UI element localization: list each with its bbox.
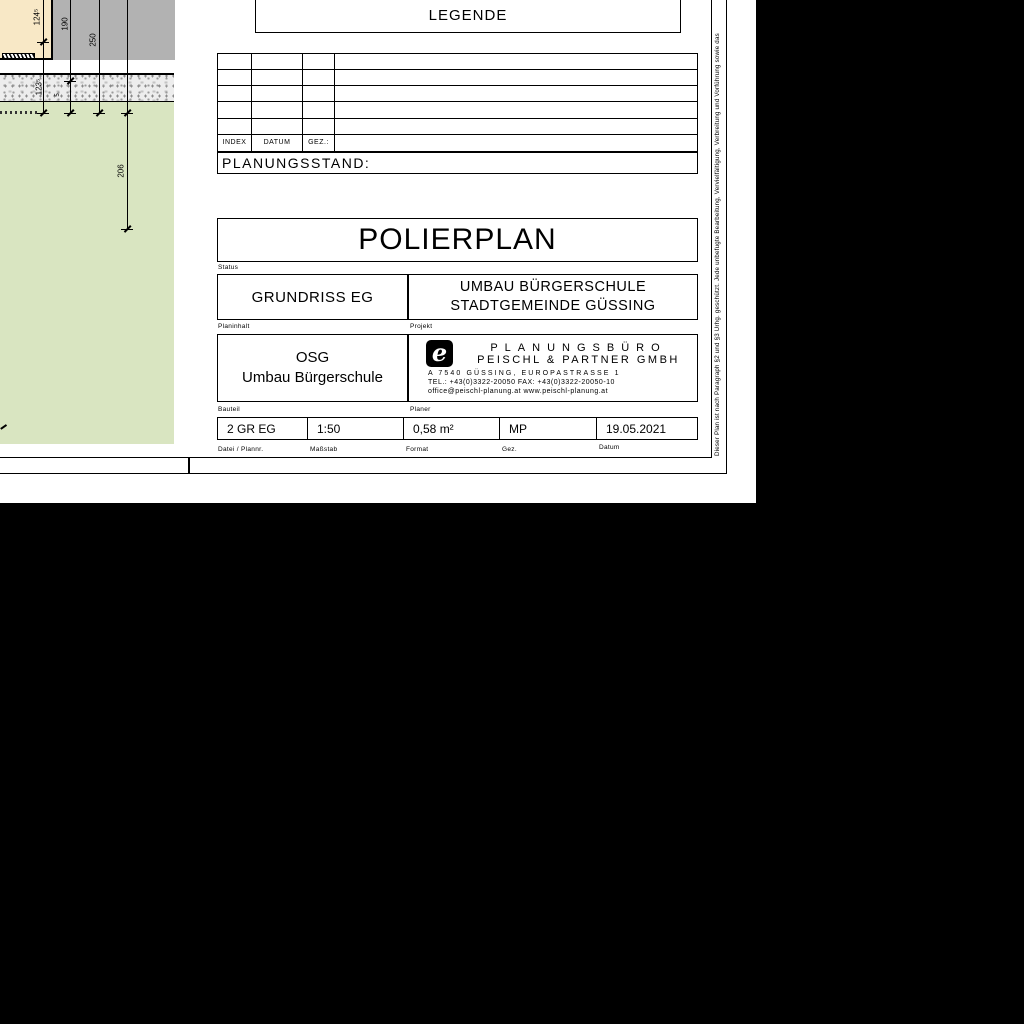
table-cell <box>252 86 303 102</box>
planungsstand-label: PLANUNGSSTAND: <box>222 155 370 171</box>
index-header: INDEX <box>218 135 252 151</box>
table-cell <box>303 86 335 102</box>
firm-address: A 7540 GÜSSING, EUROPASTRASSE 1 <box>428 369 697 378</box>
planer-box: e PLANUNGSBÜRO PEISCHL & PARTNER GMBH A … <box>408 334 698 402</box>
file-label: Datei / Plannr. <box>218 446 263 453</box>
table-cell <box>252 119 303 135</box>
table-cell <box>303 102 335 118</box>
fold-mark <box>188 458 190 474</box>
table-cell <box>252 102 303 118</box>
bauteil-label: Bauteil <box>218 406 240 413</box>
project-line2: STADTGEMEINDE GÜSSING <box>450 297 655 316</box>
planinhalt-label: Planinhalt <box>218 323 250 330</box>
meta-row: 2 GR EG 1:50 0,58 m² MP 19.05.2021 <box>217 417 698 440</box>
gez-value: MP <box>500 418 597 439</box>
table-cell <box>252 54 303 70</box>
table-cell <box>303 70 335 86</box>
status-label: Status <box>218 264 238 271</box>
table-cell <box>218 102 252 118</box>
plan-sheet: 124⁵ 190 250 123⁵ 5 206 Dieser Plan ist … <box>0 0 756 503</box>
firm-address-block: A 7540 GÜSSING, EUROPASTRASSE 1 TEL.: +4… <box>428 369 697 397</box>
firm-header: e PLANUNGSBÜRO PEISCHL & PARTNER GMBH <box>409 340 697 367</box>
peischl-logo-icon: e <box>426 340 453 367</box>
table-cell <box>303 119 335 135</box>
table-cell <box>335 54 697 70</box>
gez-label: Gez. <box>502 446 517 453</box>
scale-value: 1:50 <box>308 418 404 439</box>
plan-type-box: POLIERPLAN <box>217 218 698 262</box>
project-line1: UMBAU BÜRGERSCHULE <box>460 278 646 297</box>
plan-content-title: GRUNDRISS EG <box>252 289 374 306</box>
firm-phone: TEL.: +43(0)3322-20050 FAX: +43(0)3322-2… <box>428 378 697 387</box>
table-cell <box>218 119 252 135</box>
copyright-notice: Dieser Plan ist nach Paragraph §2 und §3… <box>714 4 727 456</box>
table-cell <box>335 70 697 86</box>
revision-index-table: INDEX DATUM GEZ.: <box>217 53 698 152</box>
legend-box: LEGENDE <box>255 0 681 33</box>
planungsstand-box: PLANUNGSSTAND: <box>217 152 698 174</box>
table-cell <box>335 119 697 135</box>
datum-label: Datum <box>599 444 620 451</box>
legend-title: LEGENDE <box>429 7 508 24</box>
format-value: 0,58 m² <box>404 418 500 439</box>
project-box: UMBAU BÜRGERSCHULE STADTGEMEINDE GÜSSING <box>408 274 698 320</box>
plan-viewer-canvas: 124⁵ 190 250 123⁵ 5 206 Dieser Plan ist … <box>0 0 1024 1024</box>
table-cell <box>303 54 335 70</box>
bauteil-line2: Umbau Bürgerschule <box>242 368 383 388</box>
scale-label: Maßstab <box>310 446 337 453</box>
datum-header: DATUM <box>252 135 303 151</box>
plan-content-box: GRUNDRISS EG <box>217 274 408 320</box>
firm-names: PLANUNGSBÜRO PEISCHL & PARTNER GMBH <box>460 342 697 366</box>
gez-header: GEZ.: <box>303 135 335 151</box>
table-cell <box>335 135 697 151</box>
bauteil-line1: OSG <box>296 348 329 368</box>
table-cell <box>218 86 252 102</box>
bauteil-box: OSG Umbau Bürgerschule <box>217 334 408 402</box>
table-cell <box>335 102 697 118</box>
table-cell <box>218 54 252 70</box>
plan-type-title: POLIERPLAN <box>358 223 556 257</box>
datum-value: 19.05.2021 <box>597 418 697 439</box>
table-cell <box>335 86 697 102</box>
table-cell <box>218 70 252 86</box>
firm-name-line1: PLANUNGSBÜRO <box>460 342 697 354</box>
file-value: 2 GR EG <box>218 418 308 439</box>
planer-label: Planer <box>410 406 431 413</box>
table-cell <box>252 70 303 86</box>
projekt-label: Projekt <box>410 323 432 330</box>
firm-name-line2: PEISCHL & PARTNER GMBH <box>460 354 697 366</box>
format-label: Format <box>406 446 428 453</box>
firm-web: office@peischl-planung.at www.peischl-pl… <box>428 387 697 396</box>
